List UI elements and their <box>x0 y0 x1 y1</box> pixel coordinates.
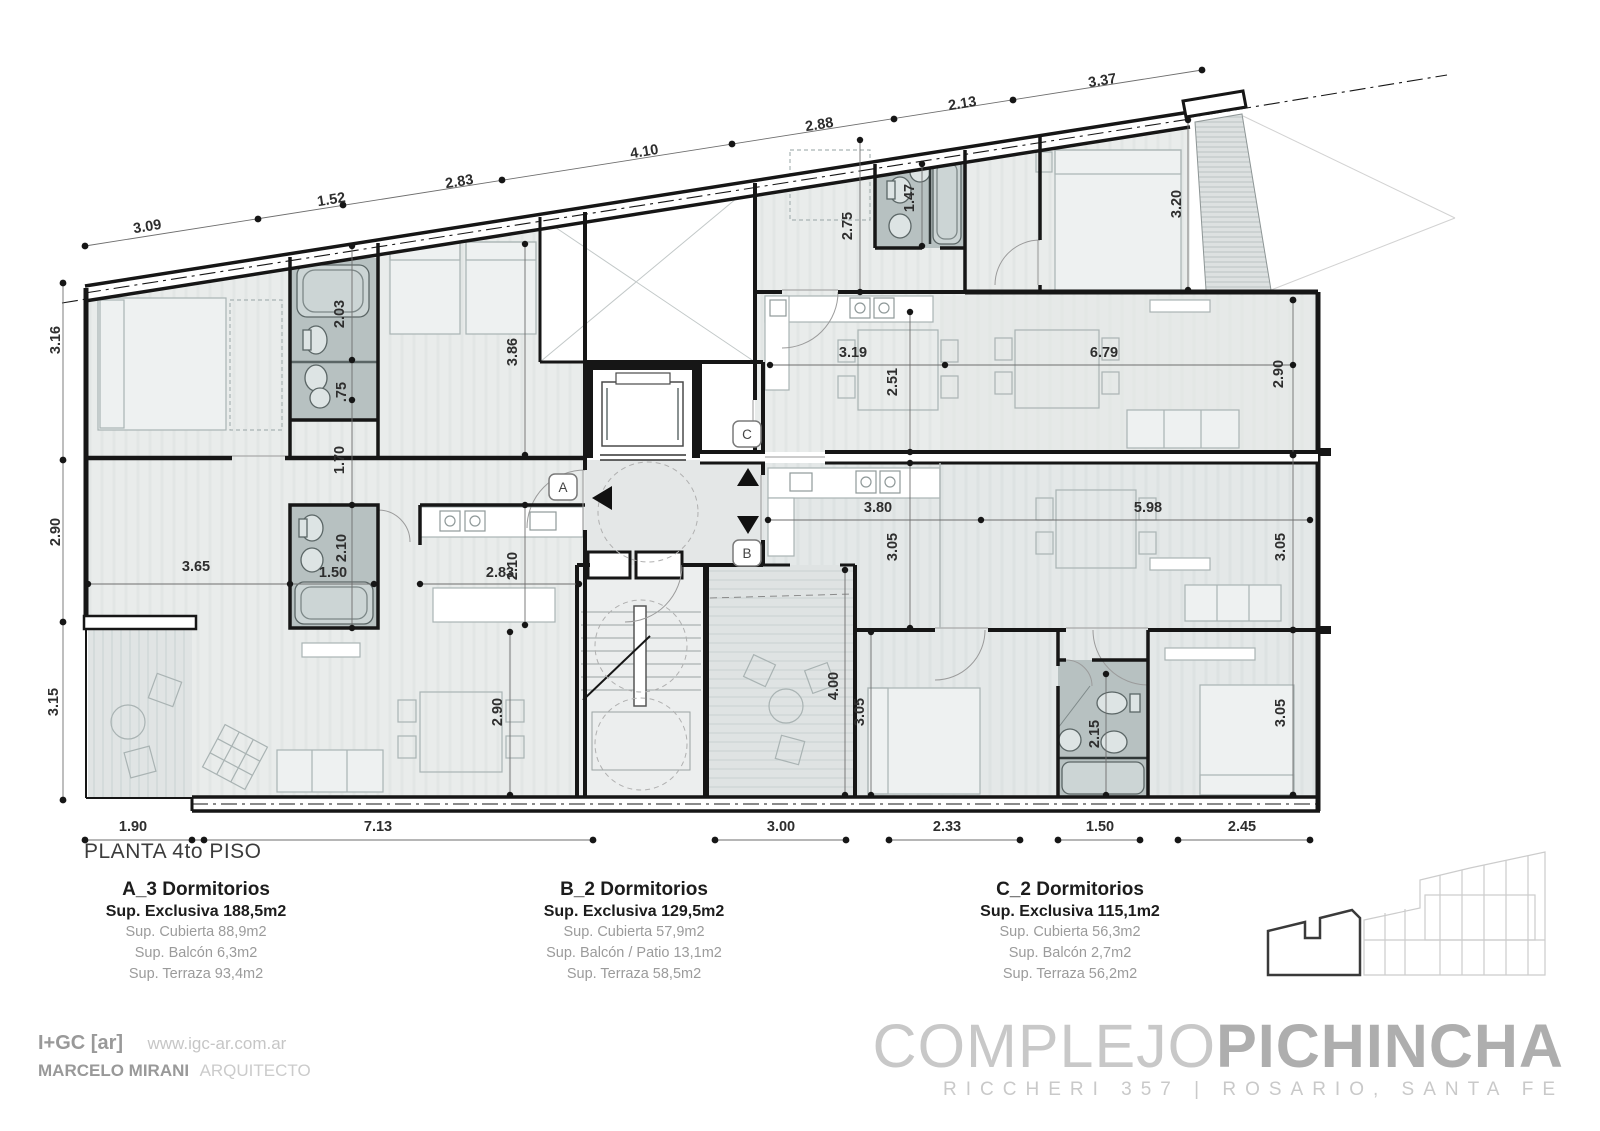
legend-unit-b: B_2 Dormitorios Sup. Exclusiva 129,5m2 S… <box>484 878 784 985</box>
sofa <box>1185 585 1281 621</box>
dimension-label: 2.15 <box>1087 720 1103 748</box>
dimension-label: 2.51 <box>885 368 901 396</box>
dimension-label: 3.16 <box>48 326 64 354</box>
unit-a-exclusive-area: Sup. Exclusiva 188,5m2 <box>46 901 346 922</box>
architectural-sheet: A B C PLANTA 4to PISO 3.091.522.834.102.… <box>0 0 1600 1131</box>
elevator-motor <box>616 373 670 384</box>
current-building-outline <box>1268 910 1360 975</box>
unit-c-covered-area: Sup. Cubierta 56,3m2 <box>920 922 1220 943</box>
project-name-light: COMPLEJO <box>873 1012 1217 1080</box>
unit-c-balcony-area: Sup. Balcón 2,7m2 <box>920 943 1220 964</box>
unit-a-balcony-area: Sup. Balcón 6,3m2 <box>46 943 346 964</box>
bidet <box>889 214 911 238</box>
dimension-label: 2.90 <box>48 518 64 546</box>
dimension-label: 3.65 <box>182 559 210 575</box>
dimension-label: 1.50 <box>319 565 347 581</box>
dimension-label: 3.05 <box>852 698 868 726</box>
dimension-label: 4.10 <box>629 142 659 162</box>
unit-a-title: A_3 Dormitorios <box>46 878 346 901</box>
bed <box>868 688 980 794</box>
dimension-label: 7.13 <box>364 819 392 835</box>
elevator <box>583 360 702 460</box>
dimension-label: 2.83 <box>444 172 474 192</box>
site-key-icon <box>1268 852 1545 975</box>
architect-name: MARCELO MIRANI <box>38 1061 189 1080</box>
dimension-label: 3.37 <box>1087 71 1117 91</box>
dimension-label: 3.00 <box>767 819 795 835</box>
unit-marker-b: B <box>742 546 751 561</box>
dimension-label: 2.10 <box>334 534 350 562</box>
dimension-label: 3.05 <box>1273 699 1289 727</box>
duct-shafts <box>588 552 682 578</box>
sofa <box>277 750 383 792</box>
unit-b-balcony-area: Sup. Balcón / Patio 13,1m2 <box>484 943 784 964</box>
unit-b-title: B_2 Dormitorios <box>484 878 784 901</box>
dimension-label: 3.05 <box>885 533 901 561</box>
dimension-label: 1.70 <box>332 446 348 474</box>
bidet <box>1101 731 1127 753</box>
dimension-label: 3.20 <box>1169 190 1185 218</box>
dimension-label: .75 <box>334 382 350 402</box>
terrace-wedge <box>1195 114 1271 290</box>
kitchen-counter <box>765 296 933 322</box>
unit-a-terrace-area: Sup. Terraza 93,4m2 <box>46 964 346 985</box>
unit-b-exclusive-area: Sup. Exclusiva 129,5m2 <box>484 901 784 922</box>
elevator-cab <box>602 382 683 446</box>
plan-title: PLANTA 4to PISO <box>84 840 262 863</box>
dimension-label: 2.88 <box>804 115 834 135</box>
bathtub <box>1062 762 1144 794</box>
dimension-label: 2.03 <box>332 300 348 328</box>
dimension-label: 3.86 <box>505 338 521 366</box>
dimension-label: 3.15 <box>46 688 62 716</box>
project-name-bold: PICHINCHA <box>1216 1012 1564 1080</box>
unit-c-terrace-area: Sup. Terraza 56,2m2 <box>920 964 1220 985</box>
bidet <box>305 365 327 391</box>
tv-bench <box>302 643 360 657</box>
bed <box>1055 150 1181 290</box>
dimension-label: 3.19 <box>839 345 867 361</box>
dimension-label: 2.90 <box>1271 360 1287 388</box>
dimension-label: 2.75 <box>840 212 856 240</box>
unit-marker-c: C <box>742 427 752 442</box>
dimension-label: 4.00 <box>826 672 842 700</box>
project-city: ROSARIO, SANTA FE <box>1222 1079 1564 1100</box>
legend-unit-a: A_3 Dormitorios Sup. Exclusiva 188,5m2 S… <box>46 878 346 985</box>
unit-c-title: C_2 Dormitorios <box>920 878 1220 901</box>
project-logo: COMPLEJOPICHINCHA RICCHERI 357 | ROSARIO… <box>873 1016 1564 1101</box>
sofa <box>1127 410 1239 448</box>
dimension-label: 5.98 <box>1134 500 1162 516</box>
dimension-label: 2.45 <box>1228 819 1256 835</box>
dimension-label: 6.79 <box>1090 345 1118 361</box>
tv-bench <box>1150 300 1210 312</box>
legend-unit-c: C_2 Dormitorios Sup. Exclusiva 115,1m2 S… <box>920 878 1220 985</box>
dimension-label: 2.33 <box>933 819 961 835</box>
dimension-label: 1.50 <box>1086 819 1114 835</box>
bed <box>390 242 460 334</box>
unit-a-covered-area: Sup. Cubierta 88,9m2 <box>46 922 346 943</box>
unit-b-terrace-area: Sup. Terraza 58,5m2 <box>484 964 784 985</box>
unit-b-covered-area: Sup. Cubierta 57,9m2 <box>484 922 784 943</box>
dimension-label: 1.47 <box>902 184 918 212</box>
studio-website: www.igc-ar.com.ar <box>147 1034 286 1053</box>
unit-c-exclusive-area: Sup. Exclusiva 115,1m2 <box>920 901 1220 922</box>
dimension-label: 3.80 <box>864 500 892 516</box>
toilet <box>1097 692 1127 714</box>
sink <box>310 388 330 408</box>
architect-title: ARQUITECTO <box>200 1061 311 1080</box>
bed <box>98 298 226 430</box>
separator: | <box>1194 1079 1208 1100</box>
architect-credits: I+GC [ar] www.igc-ar.com.ar MARCELO MIRA… <box>38 1030 311 1085</box>
dimension-label: 2.13 <box>947 94 977 114</box>
studio-name: I+GC [ar] <box>38 1032 123 1054</box>
dimension-label: 3.05 <box>1273 533 1289 561</box>
bed <box>466 242 536 334</box>
dimension-label: 2.10 <box>505 552 521 580</box>
dimension-label: 2.90 <box>490 698 506 726</box>
project-address: RICCHERI 357 <box>943 1079 1180 1100</box>
sink <box>1059 729 1081 751</box>
dimension-label: 1.90 <box>119 819 147 835</box>
kitchen-island <box>433 588 555 622</box>
unit-marker-a: A <box>558 480 567 495</box>
